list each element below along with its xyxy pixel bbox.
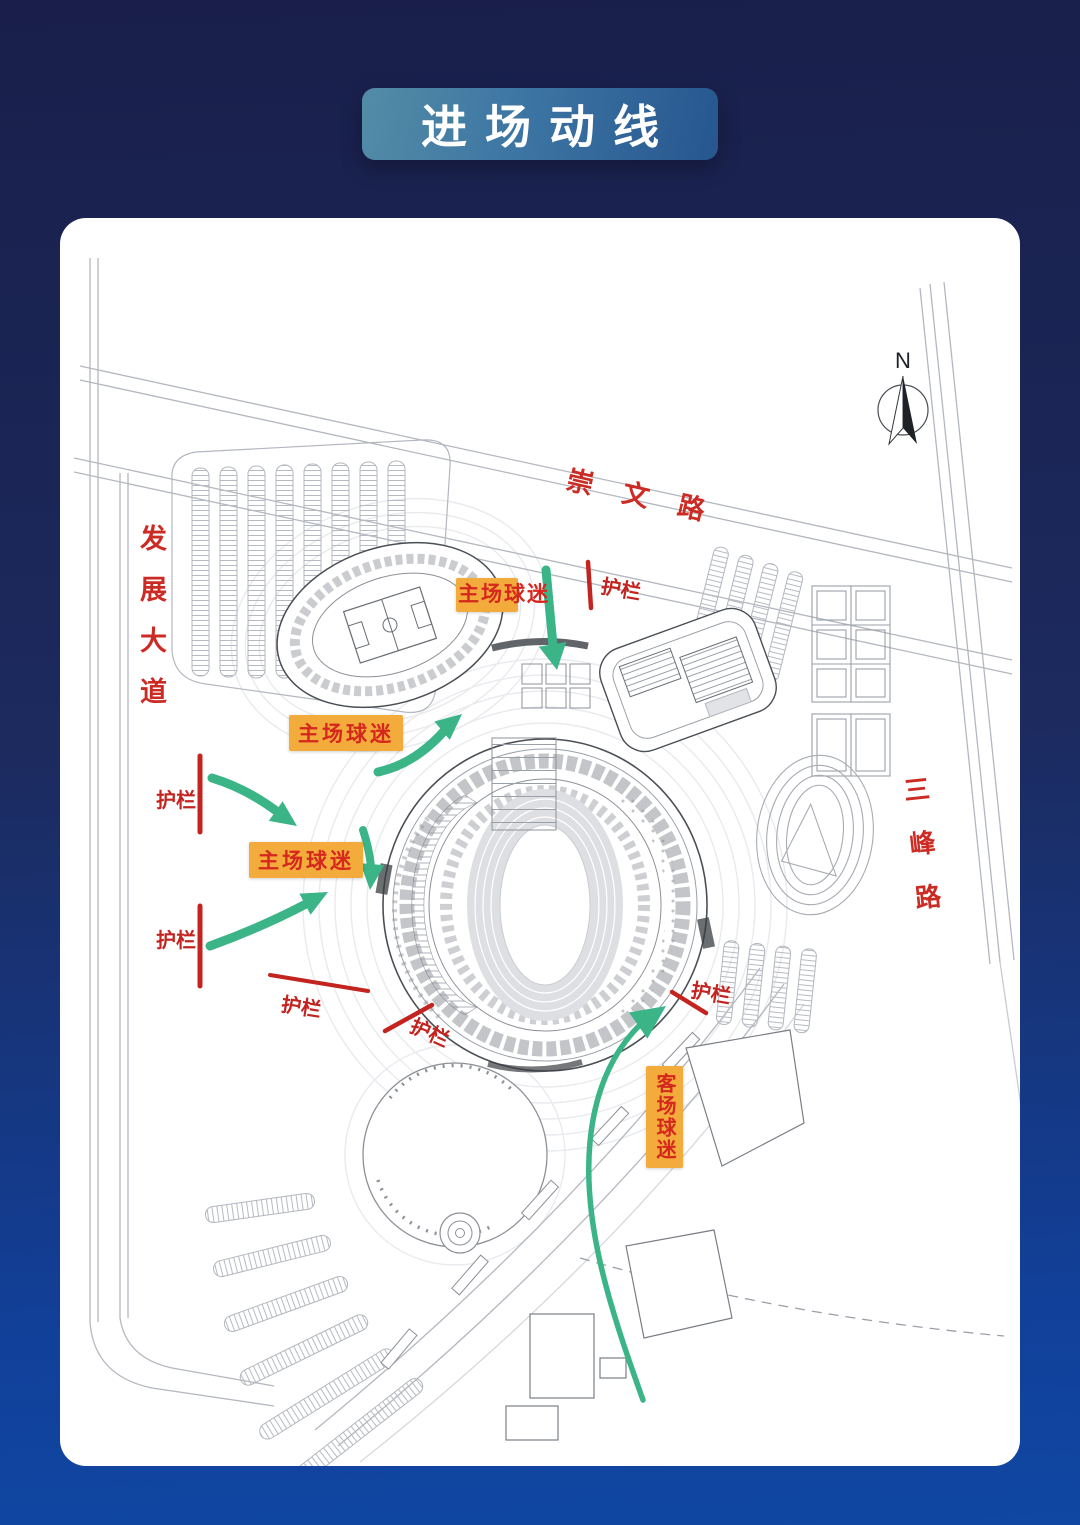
south-plaza [363,1063,547,1253]
poster-background: 进场动线 [0,0,1080,1525]
home-flow-left-down [212,778,275,810]
parking-southwest [204,1192,425,1466]
badge-home-fans-southwest: 主场球迷 [249,842,363,878]
map-card: N [60,218,1020,1466]
sports-courts [812,586,890,776]
away-flow-route [589,1014,652,1400]
barrier-label-west-upper: 护栏 [156,784,196,813]
practice-track [748,749,883,922]
home-flow-north [546,570,553,646]
north-label: N [895,348,911,373]
road-label-fazhan: 发展大道 [132,524,171,728]
page-title: 进场动线 [362,88,718,160]
barrier-label-southwest: 护栏 [279,988,323,1023]
home-flow-mid-down [363,830,371,866]
natatorium [592,601,783,759]
barrier-label-west-lower: 护栏 [156,924,196,953]
badge-home-fans-west: 主场球迷 [289,715,403,751]
site-plan-svg: N [60,218,1020,1466]
home-flow-left-up [210,904,306,946]
gymnasium [256,515,525,735]
badge-home-fans-north: 主场球迷 [456,578,518,612]
badge-away-fans: 客场球迷 [646,1066,683,1168]
north-compass: N [878,348,928,444]
